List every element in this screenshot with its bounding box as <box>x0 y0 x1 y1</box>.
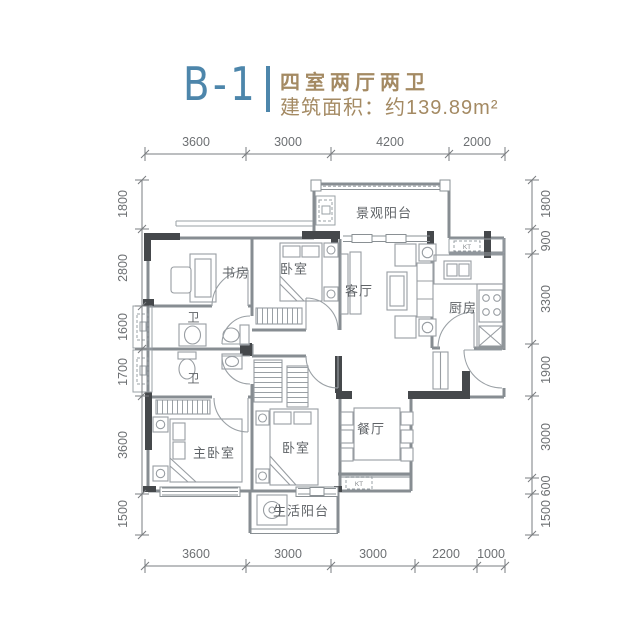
dim-right-5: 600 <box>539 476 553 497</box>
room-label-master-bedroom: 主卧室 <box>193 443 235 462</box>
dim-left-4: 3600 <box>116 431 130 459</box>
toilet-lower <box>178 352 196 359</box>
dim-left-2: 1600 <box>116 313 130 341</box>
dim-left-1: 2800 <box>116 254 130 282</box>
toilet-upper <box>240 325 249 345</box>
dim-right-6: 1500 <box>539 500 553 528</box>
dim-bottom-1: 3000 <box>274 547 302 561</box>
study-desk <box>190 254 216 302</box>
dim-bottom-2: 3000 <box>359 547 387 561</box>
room-label-view-balcony: 景观阳台 <box>356 203 412 222</box>
closet <box>287 366 308 407</box>
dim-top-2: 4200 <box>376 135 404 149</box>
vanity-upper <box>179 324 206 346</box>
ac-unit-tag: KT <box>355 481 363 488</box>
dim-bottom-4: 1000 <box>477 547 505 561</box>
sofa <box>417 263 433 317</box>
room-label-living-room: 客厅 <box>345 281 373 300</box>
dim-right-2: 3300 <box>539 285 553 313</box>
closet <box>254 360 282 402</box>
room-label-bedroom-lower: 卧室 <box>282 438 310 457</box>
room-label-bathroom-lower: 卫 <box>187 370 200 387</box>
dim-right-3: 1900 <box>539 356 553 384</box>
dim-top-3: 2000 <box>463 135 491 149</box>
dim-bottom-3: 2200 <box>432 547 460 561</box>
dim-top-0: 3600 <box>182 135 210 149</box>
dim-right-1: 900 <box>539 231 553 252</box>
dim-right-0: 1800 <box>539 190 553 218</box>
furniture-layer <box>153 243 504 525</box>
room-label-kitchen: 厨房 <box>449 298 477 317</box>
dim-bottom-0: 3600 <box>182 547 210 561</box>
room-label-dining-room: 餐厅 <box>357 419 385 438</box>
wardrobe-master <box>156 400 210 414</box>
room-label-bedroom-upper: 卧室 <box>280 259 308 278</box>
dim-right-4: 3000 <box>539 423 553 451</box>
dim-left-5: 1500 <box>116 500 130 528</box>
dim-left-0: 1800 <box>116 190 130 218</box>
room-label-bathroom-upper: 卫 <box>187 309 200 326</box>
floorplan-drawing: KT KT <box>0 0 640 639</box>
dim-left-3: 1700 <box>116 358 130 386</box>
floorplan-page: B-1 四室两厅两卫 建筑面积：约139.89m² <box>0 0 640 639</box>
room-label-laundry-balcony: 生活阳台 <box>273 501 329 520</box>
room-label-study: 书房 <box>222 263 250 282</box>
ac-unit-tag: KT <box>463 244 471 251</box>
study-chair <box>171 267 191 293</box>
wardrobe-upper <box>256 308 302 324</box>
dim-top-1: 3000 <box>274 135 302 149</box>
